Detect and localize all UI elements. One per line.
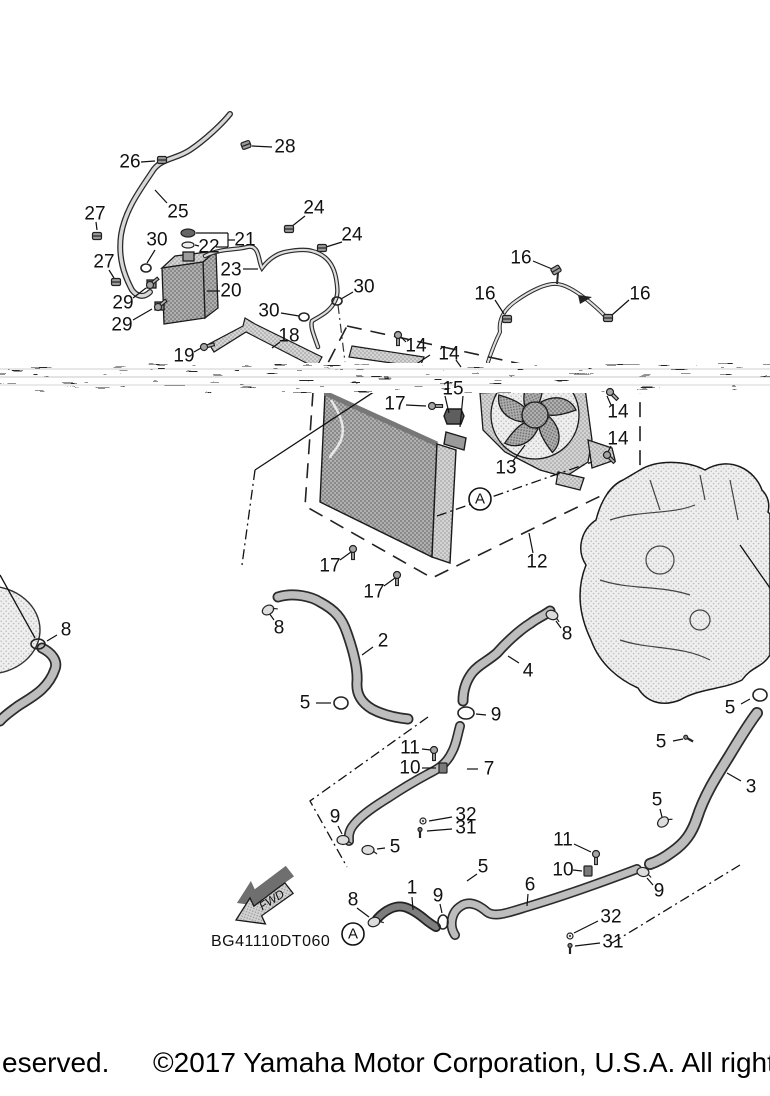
diagram-code: BG41110DT060 bbox=[211, 933, 330, 951]
callout-29[interactable]: 29 bbox=[111, 316, 132, 335]
callout-9[interactable]: 9 bbox=[654, 882, 665, 901]
callout-14[interactable]: 14 bbox=[438, 345, 459, 364]
callout-3[interactable]: 3 bbox=[746, 778, 757, 797]
callout-6[interactable]: 6 bbox=[525, 876, 536, 895]
callout-5[interactable]: 5 bbox=[656, 733, 667, 752]
callout-31[interactable]: 31 bbox=[602, 933, 623, 952]
callout-9[interactable]: 9 bbox=[433, 887, 444, 906]
callout-1[interactable]: 1 bbox=[407, 879, 418, 898]
callout-4[interactable]: 4 bbox=[523, 662, 534, 681]
callout-26[interactable]: 26 bbox=[119, 153, 140, 172]
engine-block bbox=[580, 462, 770, 703]
callout-30[interactable]: 30 bbox=[353, 278, 374, 297]
callout-16[interactable]: 16 bbox=[474, 285, 495, 304]
callout-24[interactable]: 24 bbox=[341, 226, 362, 245]
callout-19[interactable]: 19 bbox=[173, 347, 194, 366]
callout-32[interactable]: 32 bbox=[600, 908, 621, 927]
callout-13[interactable]: 13 bbox=[495, 459, 516, 478]
diagram-line-art: FWD bbox=[0, 0, 770, 1096]
callout-22[interactable]: 22 bbox=[198, 238, 219, 257]
callout-8[interactable]: 8 bbox=[61, 621, 72, 640]
view-label-A[interactable]: A bbox=[475, 492, 485, 507]
callout-16[interactable]: 16 bbox=[629, 285, 650, 304]
callout-17[interactable]: 17 bbox=[319, 557, 340, 576]
parts-diagram-page: FWD 282625272730222124242320292930301819… bbox=[0, 0, 770, 1096]
radiator-core bbox=[320, 393, 466, 563]
callout-16[interactable]: 16 bbox=[510, 249, 531, 268]
callout-9[interactable]: 9 bbox=[330, 808, 341, 827]
copyright-fragment: eserved. bbox=[2, 1047, 109, 1079]
callout-20[interactable]: 20 bbox=[220, 282, 241, 301]
callout-2[interactable]: 2 bbox=[378, 632, 389, 651]
callout-12[interactable]: 12 bbox=[526, 553, 547, 572]
callout-28[interactable]: 28 bbox=[274, 138, 295, 157]
callout-17[interactable]: 17 bbox=[384, 395, 405, 414]
hose-2 bbox=[278, 595, 408, 719]
callout-10[interactable]: 10 bbox=[552, 861, 573, 880]
hose-4 bbox=[463, 611, 550, 701]
watermark-noise-band bbox=[0, 363, 770, 393]
callout-18[interactable]: 18 bbox=[278, 327, 299, 346]
callout-8[interactable]: 8 bbox=[274, 619, 285, 638]
callout-8[interactable]: 8 bbox=[348, 891, 359, 910]
callout-29[interactable]: 29 bbox=[112, 294, 133, 313]
callout-11[interactable]: 11 bbox=[400, 739, 420, 758]
callout-7[interactable]: 7 bbox=[484, 760, 495, 779]
callout-31[interactable]: 31 bbox=[455, 819, 476, 838]
callout-24[interactable]: 24 bbox=[303, 199, 324, 218]
callout-15[interactable]: 15 bbox=[442, 380, 463, 399]
callout-30[interactable]: 30 bbox=[146, 231, 167, 250]
callout-11[interactable]: 11 bbox=[553, 831, 573, 850]
callout-5[interactable]: 5 bbox=[652, 791, 663, 810]
callout-17[interactable]: 17 bbox=[363, 583, 384, 602]
callout-5[interactable]: 5 bbox=[478, 858, 489, 877]
fwd-arrow: FWD bbox=[224, 864, 307, 935]
callout-25[interactable]: 25 bbox=[167, 203, 188, 222]
callout-27[interactable]: 27 bbox=[84, 205, 105, 224]
callout-8[interactable]: 8 bbox=[562, 625, 573, 644]
callout-14[interactable]: 14 bbox=[405, 337, 426, 356]
callout-21[interactable]: 21 bbox=[234, 231, 255, 250]
callout-5[interactable]: 5 bbox=[725, 699, 736, 718]
callout-14[interactable]: 14 bbox=[607, 430, 628, 449]
hose-1 bbox=[377, 907, 436, 927]
view-label-A[interactable]: A bbox=[348, 927, 358, 942]
callout-23[interactable]: 23 bbox=[220, 261, 241, 280]
callout-10[interactable]: 10 bbox=[399, 759, 420, 778]
callout-5[interactable]: 5 bbox=[300, 694, 311, 713]
callout-30[interactable]: 30 bbox=[258, 302, 279, 321]
left-outlet-part bbox=[0, 575, 56, 721]
reservoir-tank-20 bbox=[147, 251, 218, 324]
callout-5[interactable]: 5 bbox=[390, 838, 401, 857]
callout-9[interactable]: 9 bbox=[491, 706, 502, 725]
callout-27[interactable]: 27 bbox=[93, 253, 114, 272]
copyright-text: ©2017 Yamaha Motor Corporation, U.S.A. A… bbox=[153, 1047, 770, 1079]
callout-14[interactable]: 14 bbox=[607, 403, 628, 422]
pipe-16 bbox=[488, 273, 605, 362]
